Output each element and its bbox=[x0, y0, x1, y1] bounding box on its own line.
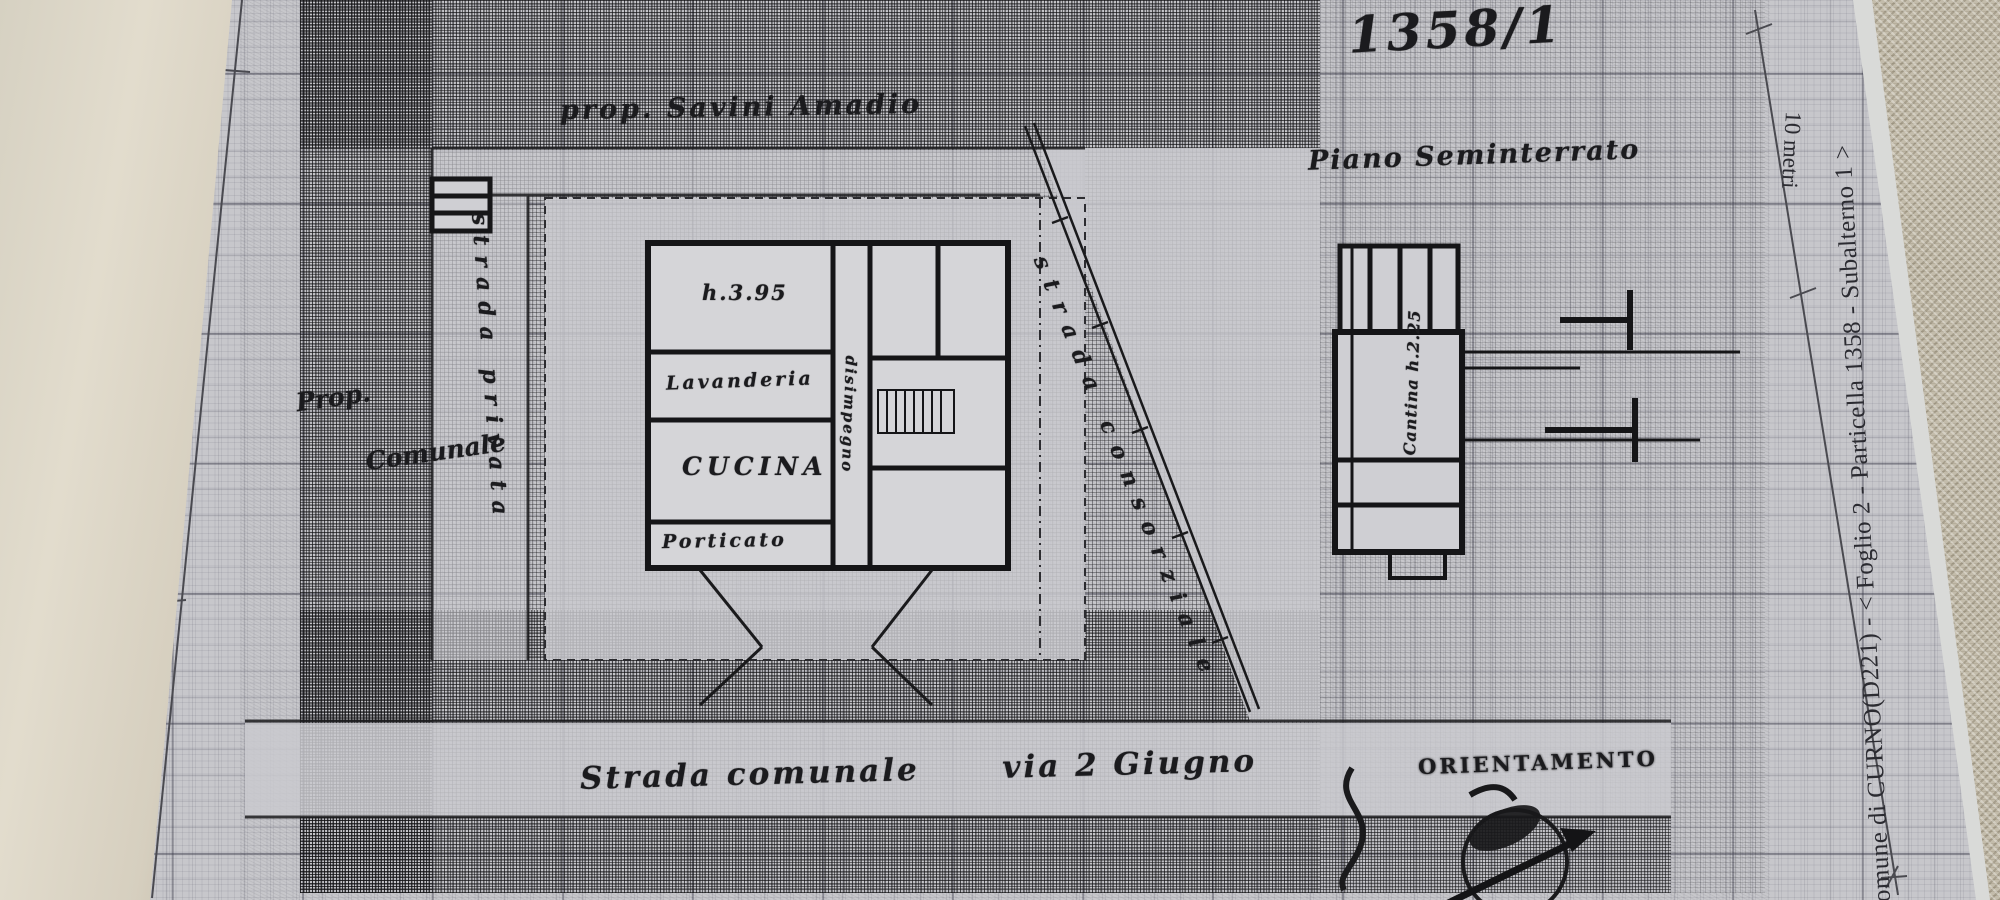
room-porch: Porticato bbox=[662, 529, 787, 553]
owner-note-handwritten: prop. Savini Amadio bbox=[560, 89, 923, 126]
parcel-note-line1: Prop. bbox=[294, 378, 372, 417]
photo-of-cadastral-plan: 1358/1 prop. Savini Amadio Piano Seminte… bbox=[0, 0, 2000, 900]
basement-plan bbox=[1335, 246, 1740, 578]
pen-flourish bbox=[1342, 768, 1363, 890]
diagonal-boundary-line bbox=[1025, 123, 1259, 712]
driveway-funnel bbox=[700, 570, 932, 705]
basement-section-marks bbox=[1462, 290, 1740, 462]
room-kitchen: CUCINA bbox=[682, 452, 828, 481]
room-height-note: h.3.95 bbox=[702, 280, 788, 305]
scale-label: 10 metri bbox=[1776, 111, 1806, 190]
compass-rose bbox=[1442, 787, 1596, 900]
sheet-number-handwritten: 1358/1 bbox=[1347, 0, 1566, 65]
